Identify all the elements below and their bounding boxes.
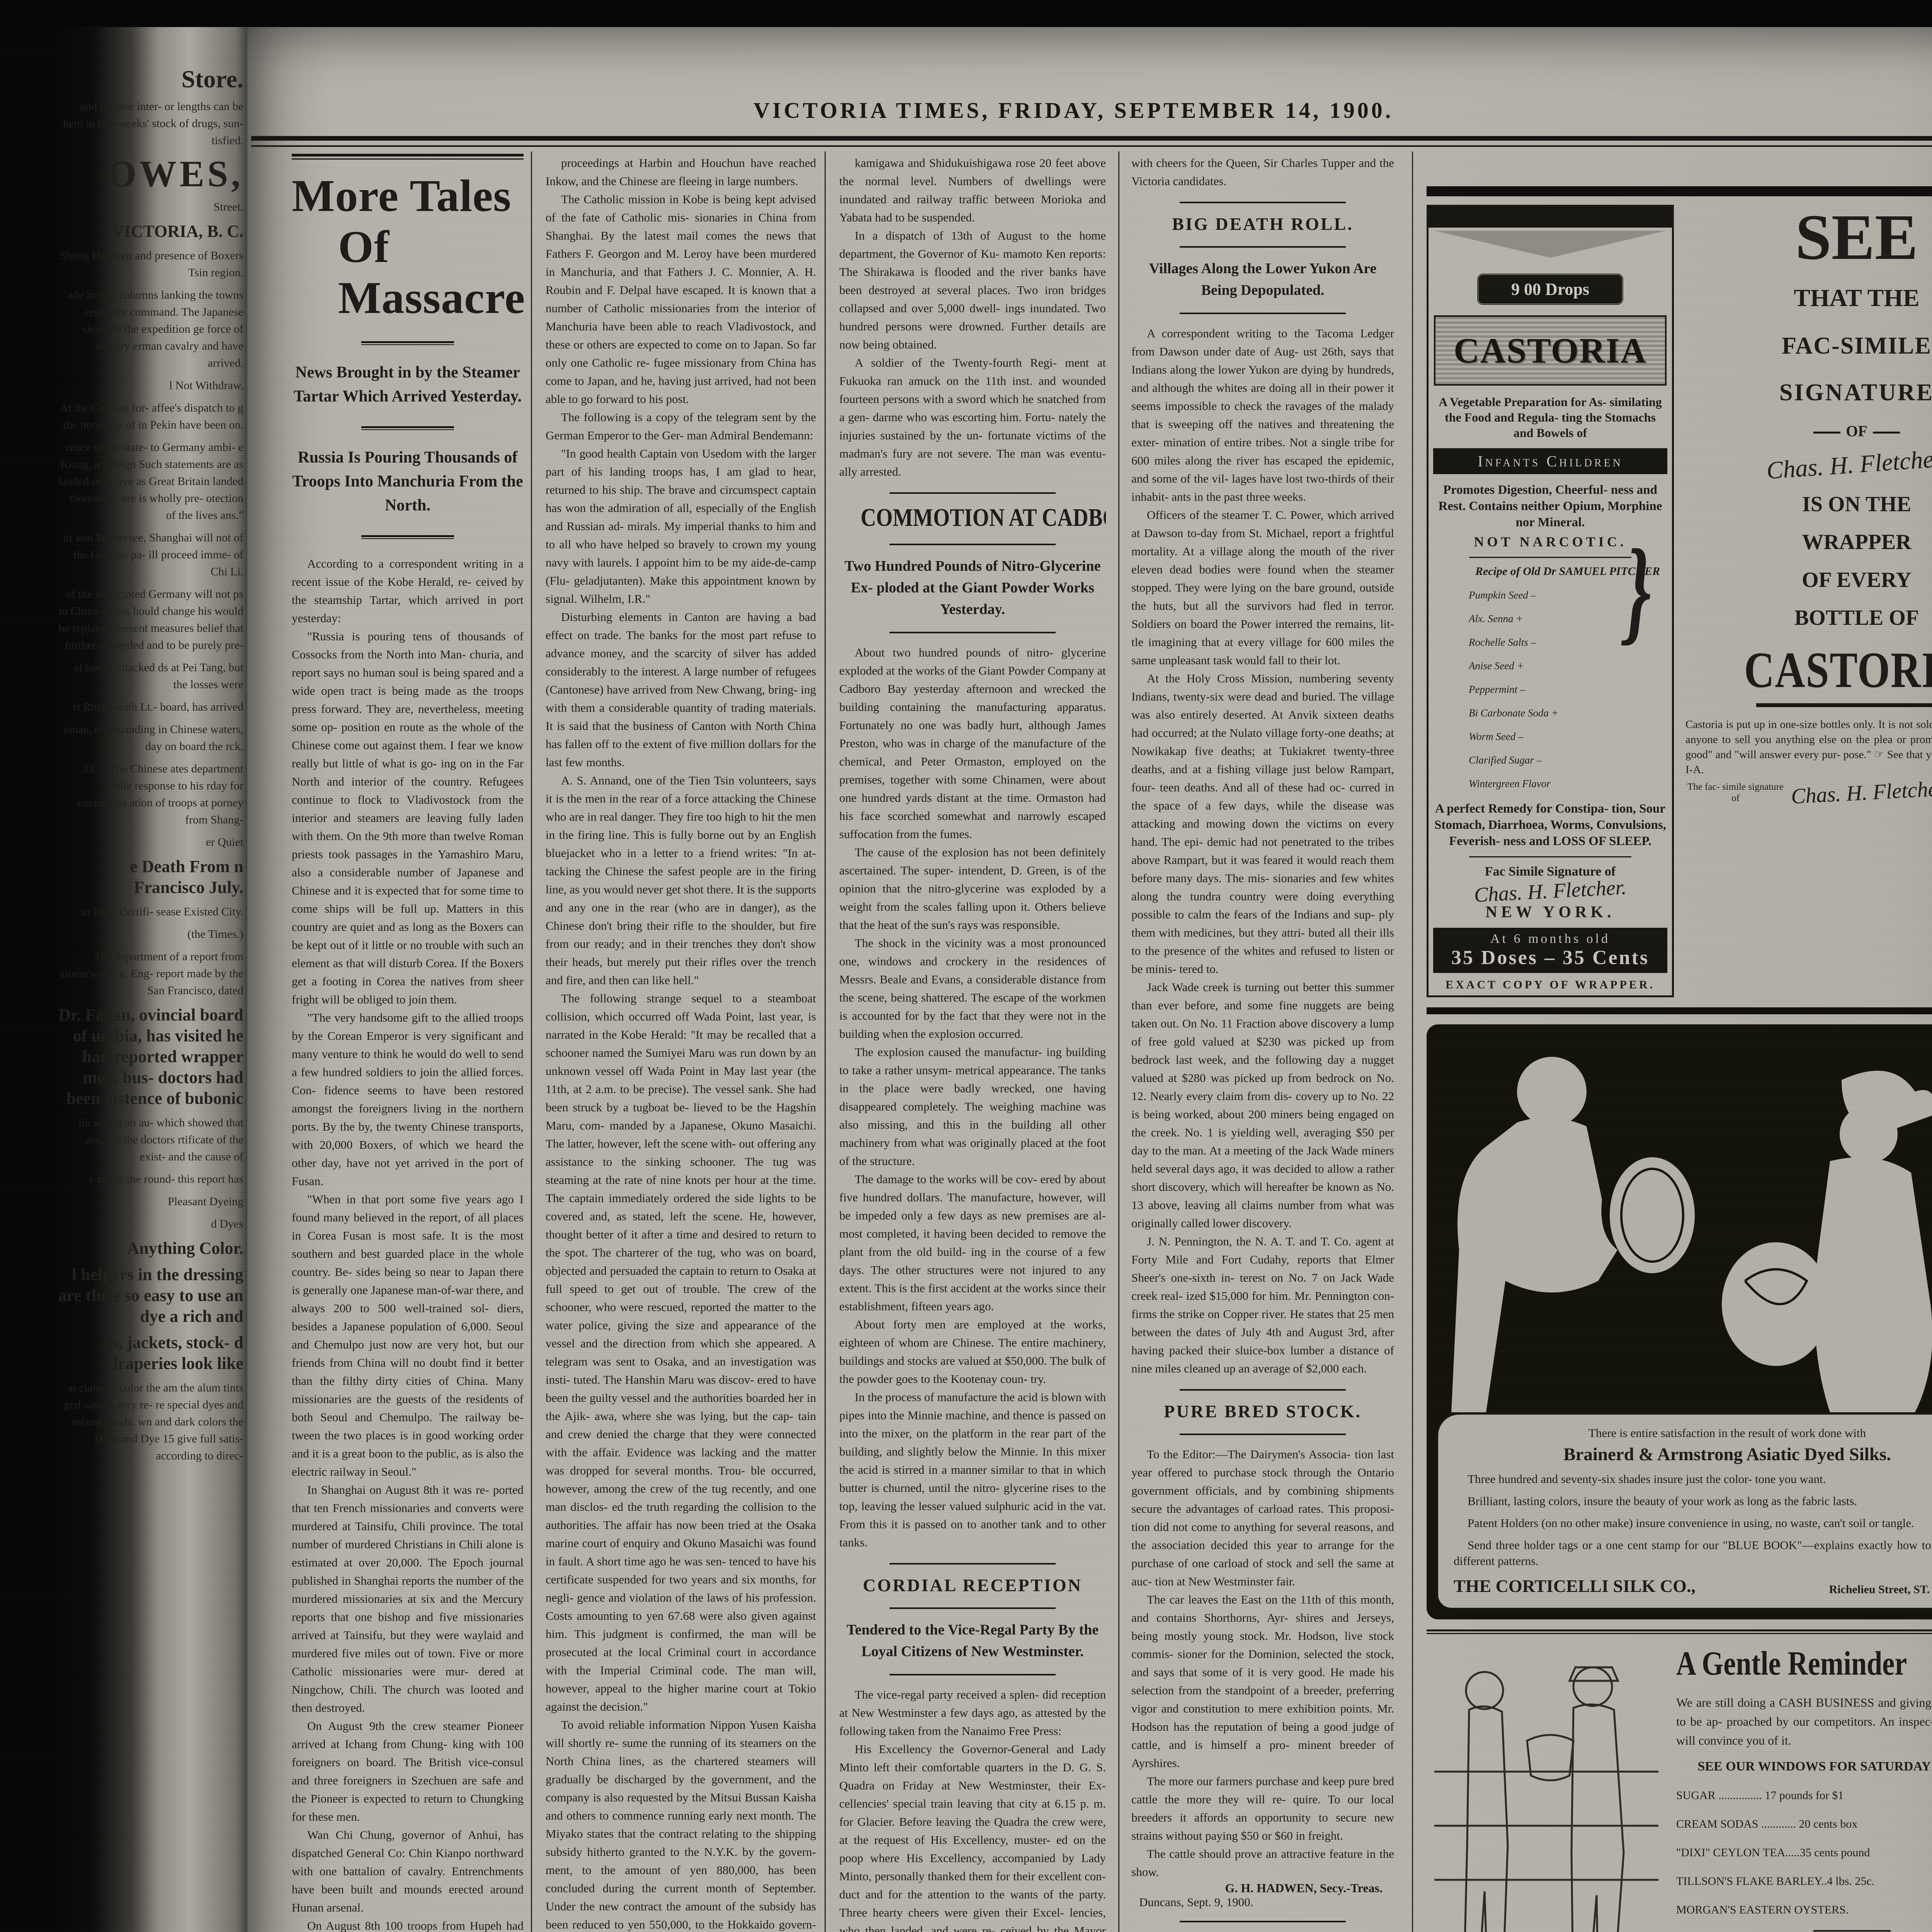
paragraph-2: A soldier of the Twenty-fourth Regi- men… — [839, 354, 1106, 481]
paragraph-21: Dr. Fagan, ovincial board of umbia, has … — [58, 1005, 243, 1109]
is-on-the-line: IS ON THE — [1685, 492, 1932, 517]
cadboro-headline: COMMOTION AT CADBORO BAY. — [861, 504, 1085, 532]
castoria-big-word: CASTORIA — [1716, 640, 1932, 699]
article-body: According to a correspondent writing in … — [292, 554, 524, 1932]
signature-prefix: The fac- simile signature of — [1685, 781, 1786, 804]
pure-bred-headline: PURE BRED STOCK. — [1131, 1401, 1394, 1422]
paragraph-6: ade in two columns lanking the towns ers… — [58, 287, 243, 372]
article-body: proceedings at Harbin and Houchun have r… — [546, 154, 816, 1932]
paragraph-1: and Rubber inter- or lengths can be hem … — [58, 98, 243, 149]
article-body: To the Editor:—The Dairymen's Associa- t… — [1131, 1445, 1394, 1881]
paragraph-4: The damage to the works will be cov- ere… — [839, 1170, 1106, 1315]
paragraph-5: A. S. Annand, one of the Tien Tsin volun… — [546, 771, 816, 989]
death-roll-deck: Villages Along the Lower Yukon Are Being… — [1131, 258, 1394, 301]
paragraph-18: to Issue Certifi- sease Existed City. — [58, 903, 243, 920]
article-body: A correspondent writing to the Tacoma Le… — [1131, 324, 1394, 1378]
masthead-rule-thin — [251, 145, 1932, 147]
paragraph-1: The car leaves the East on the 11th of t… — [1131, 1590, 1394, 1772]
paragraph-2: The following is a copy of the telegram … — [546, 408, 816, 444]
advertising-column: 9 00 Drops CASTORIA A Vegetable Preparat… — [1427, 186, 1932, 1932]
deck-2: Russia Is Pouring Thousands of Troops In… — [292, 446, 524, 517]
paragraph-4: MORGAN'S EASTERN OYSTERS. — [1676, 1901, 1932, 1918]
masthead-title: VICTORIA TIMES, FRIDAY, SEPTEMBER 14, 19… — [753, 97, 1393, 123]
paragraph-13: rt Rhein, with Lt.- board, has arrived — [58, 699, 243, 716]
crosshead-rule — [1180, 1434, 1346, 1435]
paragraph-1: The cause of the explosion has not been … — [839, 843, 1106, 934]
cadboro-deck: Two Hundred Pounds of Nitro-Glycerine Ex… — [839, 555, 1106, 620]
fletcher-signature-large: Chas. H. Fletcher. — [1685, 438, 1932, 491]
paragraph-8: At the German for- affee's dispatch to g… — [58, 400, 243, 434]
label-rule — [1469, 856, 1631, 857]
column-rule-3 — [1118, 151, 1119, 1932]
paragraph-0: proceedings at Harbin and Houchun have r… — [546, 154, 816, 190]
paragraph-4: Disturbing elements in Canton are having… — [546, 608, 816, 771]
silk-shades-text: Three hundred and seventy-six shades ins… — [1454, 1471, 1932, 1487]
paragraph-22: ile was at an au- which showed that ase,… — [58, 1114, 243, 1165]
paragraph-4: In Shanghai on August 8th it was re- por… — [292, 1481, 524, 1717]
paragraph-3: Street. — [58, 199, 243, 216]
column-4: with cheers for the Queen, Sir Charles T… — [1131, 154, 1394, 1932]
silk-intro-line: There is entire satisfaction in the resu… — [1454, 1426, 1932, 1440]
article-top-rule — [292, 154, 524, 160]
paragraph-3: "When in that port some five years ago I… — [292, 1190, 524, 1481]
signature-row: The fac- simile signature of Chas. H. Fl… — [1685, 781, 1932, 804]
shoppers-illustration — [1427, 1644, 1666, 1932]
headline-line-1: More Tales — [292, 170, 511, 221]
main-headline: More Tales Of Massacre — [292, 170, 524, 323]
castoria-brand-panel: CASTORIA — [1434, 315, 1667, 386]
two-women-illustration — [1436, 1034, 1932, 1428]
article-body: About two hundred pounds of nitro- glyce… — [839, 643, 1106, 1551]
paragraph-12: al forces attacked ds at Pei Tang, but t… — [58, 659, 243, 693]
paragraph-2: OWES, — [58, 155, 243, 193]
crosshead-rule — [1180, 1921, 1346, 1922]
castoria-remedy-text: A perfect Remedy for Constipa- tion, Sou… — [1434, 801, 1667, 849]
paragraph-3: The cattle should prove an attractive fe… — [1131, 1845, 1394, 1881]
recipe-block: Recipe of Old Dr SAMUEL PITCHER Pumpkin … — [1434, 565, 1667, 790]
paragraph-23: e to see the round- this report has — [58, 1171, 243, 1188]
headline-line-2: Of Massacre — [292, 221, 524, 323]
silk-holders-text: Patent Holders (on no other make) insure… — [1454, 1515, 1932, 1531]
column-2: proceedings at Harbin and Houchun have r… — [546, 154, 816, 1932]
crosshead-rule — [1180, 313, 1346, 314]
paragraph-15: 12.—The Chinese ates department while re… — [58, 760, 243, 828]
reminder-text: A Gentle Reminder We are still doing a C… — [1676, 1644, 1932, 1932]
paragraph-3: TILLSON'S FLAKE BARLEY..4 lbs. 25c. — [1676, 1873, 1932, 1890]
paragraph-4: Peppermint – — [1469, 683, 1667, 696]
recipe-brace: } — [1626, 580, 1651, 601]
doses-bar: At 6 months old 35 Doses – 35 Cents — [1433, 928, 1667, 973]
paragraph-16: er Quiet — [58, 834, 243, 851]
price-list: SUGAR ............... 17 pounds for $1CR… — [1676, 1787, 1932, 1918]
paragraph-26: Anything Color. — [58, 1238, 243, 1259]
paragraph-0: According to a correspondent writing in … — [292, 554, 524, 627]
silk-colors-text: Brilliant, lasting colors, insure the be… — [1454, 1493, 1932, 1509]
signature-line: SIGNATURE — [1685, 379, 1932, 406]
paragraph-5: Sheng Hai Sien and presence of Boxers Ts… — [58, 247, 243, 281]
silk-brand-line: Brainerd & Armstrong Asiatic Dyed Silks. — [1454, 1444, 1932, 1465]
ad-top-rule — [1427, 186, 1932, 196]
paragraph-29: at claim to color the am the alum tints … — [58, 1379, 243, 1464]
paragraph-2: "DIXI" CEYLON TEA.....35 cents pound — [1676, 1844, 1932, 1861]
paragraph-1: "Russia is pouring tens of thousands of … — [292, 627, 524, 1009]
dixi-ross-ad: A Gentle Reminder We are still doing a C… — [1427, 1644, 1932, 1932]
paragraph-1: Officers of the steamer T. C. Power, whi… — [1131, 506, 1394, 669]
paragraph-10: nt von Waldersee, Shanghai will not of t… — [58, 529, 243, 580]
article-body: The vice-regal party received a splen- d… — [839, 1685, 1106, 1932]
castoria-ad: 9 00 Drops CASTORIA A Vegetable Preparat… — [1427, 205, 1932, 997]
column-rule-4 — [1412, 151, 1413, 1932]
bottle-of-line: BOTTLE OF — [1685, 605, 1932, 630]
paragraph-6: Worm Seed – — [1469, 730, 1667, 743]
crosshead-rule — [1180, 202, 1346, 203]
crosshead-rule — [889, 632, 1056, 633]
see-line: SEE — [1685, 205, 1932, 270]
castoria-wrapper: 9 00 Drops CASTORIA A Vegetable Preparat… — [1427, 205, 1674, 997]
wrapper-hanger-wire — [1434, 231, 1666, 258]
masthead-rule-thick — [251, 136, 1932, 141]
paragraph-0: To the Editor:—The Dairymen's Associa- t… — [1131, 1445, 1394, 1590]
wrapper-line: WRAPPER — [1685, 530, 1932, 554]
paragraph-2: "The very handsome gift to the allied tr… — [292, 1009, 524, 1190]
paragraph-7: Clarified Sugar – — [1469, 753, 1667, 767]
paragraph-20: The department of a report from sioner's… — [58, 948, 243, 999]
paragraph-7: l Not Withdraw. — [58, 377, 243, 394]
two-men-shop-icon — [1427, 1644, 1666, 1932]
of-every-line: OF EVERY — [1685, 568, 1932, 592]
deck-1: News Brought in by the Steamer Tartar Wh… — [292, 361, 524, 408]
that-the-line: THAT THE — [1685, 284, 1932, 312]
castoria-underline — [1756, 703, 1932, 707]
reminder-paragraph: We are still doing a CASH BUSINESS and g… — [1676, 1693, 1932, 1750]
crosshead-rule — [889, 1563, 1056, 1565]
paragraph-7: On August 8th 100 troops from Hupeh had … — [292, 1917, 524, 1932]
column-rule-2 — [825, 151, 826, 1932]
crosshead-rule — [1180, 246, 1346, 248]
paragraph-0: Store. — [58, 66, 243, 93]
paragraph-28: es, jackets, stock- d draperies look lik… — [58, 1332, 243, 1374]
paragraph-6: The following strange sequel to a steamb… — [546, 989, 816, 1716]
paragraph-1: The Catholic mission in Kobe is being ke… — [546, 190, 816, 408]
paragraph-14: eman, commanding in Chinese waters, day … — [58, 721, 243, 755]
castoria-vegetable-text: A Vegetable Preparation for As- similati… — [1434, 394, 1667, 440]
deck-separator-2 — [361, 535, 454, 539]
ad-divider-rule — [1427, 1007, 1932, 1014]
letter-dateline: Duncans, Sept. 9, 1900. — [1131, 1895, 1394, 1909]
paragraph-0: About two hundred pounds of nitro- glyce… — [839, 643, 1106, 843]
paragraph-6: Wan Chi Chung, governor of Anhui, has di… — [292, 1826, 524, 1917]
paragraph-0: kamigawa and Shidukuishigawa rose 20 fee… — [839, 154, 1106, 226]
paragraph-0: The vice-regal party received a splen- d… — [839, 1685, 1106, 1740]
deck-separator — [361, 426, 454, 430]
paragraph-11: of the Associated Germany will not ps to… — [58, 586, 243, 654]
death-roll-headline: BIG DEATH ROLL. — [1131, 213, 1394, 235]
paragraph-17: e Death From n Francisco July. — [58, 856, 243, 898]
column-3: kamigawa and Shidukuishigawa rose 20 fee… — [839, 154, 1106, 1932]
reminder-windows-line: SEE OUR WINDOWS FOR SATURDAY BARGAINS. — [1676, 1758, 1932, 1776]
letter-signature: G. H. HADWEN, Secy.-Treas. — [1131, 1881, 1394, 1895]
paragraph-8: Wintergreen Flavor — [1469, 777, 1667, 790]
paragraph-3: The explosion caused the manufactur- ing… — [839, 1043, 1106, 1170]
castoria-paragraph: Castoria is put up in one-size bottles o… — [1685, 717, 1932, 777]
paragraph-6: In the process of manufacture the acid i… — [839, 1388, 1106, 1551]
facing-page-fragments: Store.and Rubber inter- or lengths can b… — [58, 66, 243, 1932]
silk-address: Richelieu Street, ST. JOHNS, P. Q. — [1829, 1583, 1932, 1596]
paragraph-0: A correspondent writing to the Tacoma Le… — [1131, 324, 1394, 506]
paragraph-25: d Dyes — [58, 1216, 243, 1233]
paragraph-3: "In good health Captain von Usedom with … — [546, 444, 816, 608]
castoria-promotes-text: Promotes Digestion, Cheerful- ness and R… — [1434, 482, 1667, 531]
silk-bluebook-text: Send three holder tags or a one cent sta… — [1454, 1537, 1932, 1569]
of-line: OF — [1685, 422, 1932, 440]
paragraph-5: Bi Carbonate Soda + — [1469, 706, 1667, 719]
label-rule — [1469, 557, 1631, 558]
doses-age: At 6 months old — [1433, 932, 1667, 946]
infants-children-bar: Infants Children — [1433, 448, 1667, 474]
paragraph-4: VICTORIA, B. C. — [58, 221, 243, 242]
paragraph-1: CREAM SODAS ............ 20 cents box — [1676, 1816, 1932, 1833]
column-rule-1 — [531, 151, 532, 1932]
cordial-deck: Tendered to the Vice-Regal Party By the … — [839, 1619, 1106, 1662]
facsimile-line: FAC-SIMILE — [1685, 332, 1932, 360]
wrapper-hanger-bar — [1429, 207, 1672, 228]
paragraph-0: SUGAR ............... 17 pounds for $1 — [1676, 1787, 1932, 1804]
article-body: kamigawa and Shidukuishigawa rose 20 fee… — [839, 154, 1106, 481]
paragraph-5: On August 9th the crew steamer Pioneer a… — [292, 1717, 524, 1826]
dixi-rule — [1813, 1930, 1891, 1932]
paragraph-2: At the Holy Cross Mission, numbering sev… — [1131, 669, 1394, 978]
paragraph-2: The shock in the vicinity was a most pro… — [839, 934, 1106, 1043]
paragraph-2: The more our farmers purchase and keep p… — [1131, 1772, 1394, 1845]
doses-price: 35 Doses – 35 Cents — [1433, 946, 1667, 969]
corticelli-silk-ad: There is entire satisfaction in the resu… — [1427, 1024, 1932, 1619]
crosshead-rule — [1180, 1389, 1346, 1391]
paragraph-3: Jack Wade creek is turning out better th… — [1131, 978, 1394, 1232]
two-women-embroidery-icon — [1436, 1034, 1932, 1428]
paragraph-24: Pleasant Dyeing — [58, 1193, 243, 1210]
reminder-headline: A Gentle Reminder — [1676, 1644, 1932, 1683]
crosshead-rule — [889, 544, 1056, 545]
exact-copy-label: EXACT COPY OF WRAPPER. — [1434, 978, 1667, 992]
crosshead-rule — [889, 492, 1056, 494]
ad-divider-rule — [1427, 1629, 1932, 1634]
paragraph-3: Anise Seed + — [1469, 659, 1667, 672]
paragraph-27: l helpers in the dressing are the e so e… — [58, 1264, 243, 1327]
headline-separator — [361, 341, 454, 345]
continuation-text: with cheers for the Queen, Sir Charles T… — [1131, 154, 1394, 190]
column-1: More Tales Of Massacre News Brought in b… — [292, 154, 524, 1932]
silk-company: THE CORTICELLI SILK CO., — [1454, 1576, 1696, 1596]
cordial-headline: CORDIAL RECEPTION — [839, 1575, 1106, 1596]
paragraph-19: (the Times.) — [58, 926, 243, 943]
castoria-drops-plaque: 9 00 Drops — [1477, 273, 1624, 305]
crosshead-rule — [889, 1607, 1056, 1609]
paragraph-1: His Excellency the Governor-General and … — [839, 1740, 1106, 1932]
silk-text-frame: There is entire satisfaction in the resu… — [1436, 1412, 1932, 1610]
paragraph-9: rence to the state- to Germany ambi- e K… — [58, 439, 243, 524]
castoria-see-panel: SEE THAT THE FAC-SIMILE SIGNATURE OF Cha… — [1685, 205, 1932, 997]
fletcher-signature-small: Chas. H. Fletcher. — [1791, 783, 1932, 802]
paragraph-5: About forty men are employed at the work… — [839, 1315, 1106, 1388]
paragraph-4: J. N. Pennington, the N. A. T. and T. Co… — [1131, 1232, 1394, 1378]
paragraph-7: To avoid reliable information Nippon Yus… — [546, 1716, 816, 1932]
crosshead-rule — [889, 1674, 1056, 1675]
paragraph-1: In a dispatch of 13th of August to the h… — [839, 226, 1106, 354]
